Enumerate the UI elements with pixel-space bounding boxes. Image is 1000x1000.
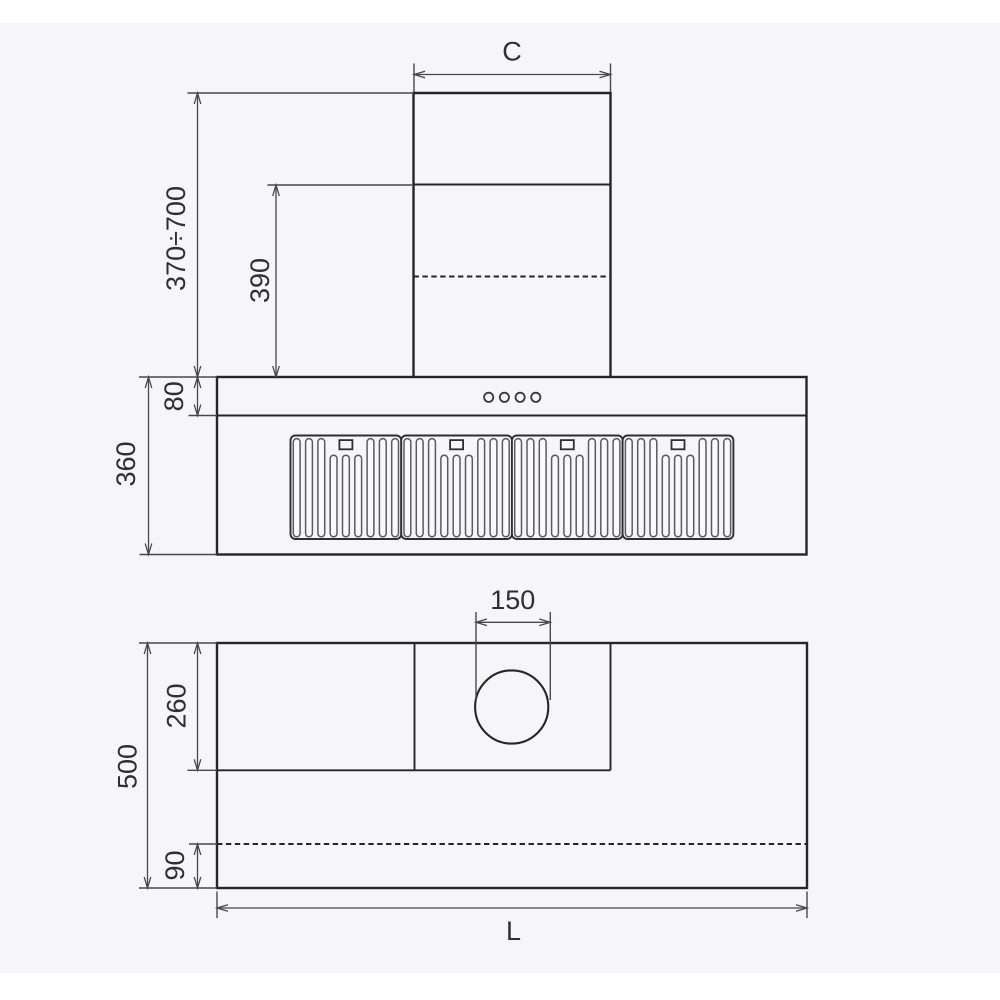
svg-text:370÷700: 370÷700	[161, 186, 191, 291]
svg-text:C: C	[502, 37, 522, 67]
svg-text:390: 390	[245, 258, 275, 303]
svg-text:80: 80	[159, 381, 189, 411]
svg-text:360: 360	[111, 441, 141, 486]
svg-text:260: 260	[162, 683, 192, 728]
svg-text:L: L	[506, 916, 521, 946]
svg-text:500: 500	[113, 744, 143, 789]
svg-text:150: 150	[490, 585, 535, 615]
svg-text:90: 90	[160, 850, 190, 880]
